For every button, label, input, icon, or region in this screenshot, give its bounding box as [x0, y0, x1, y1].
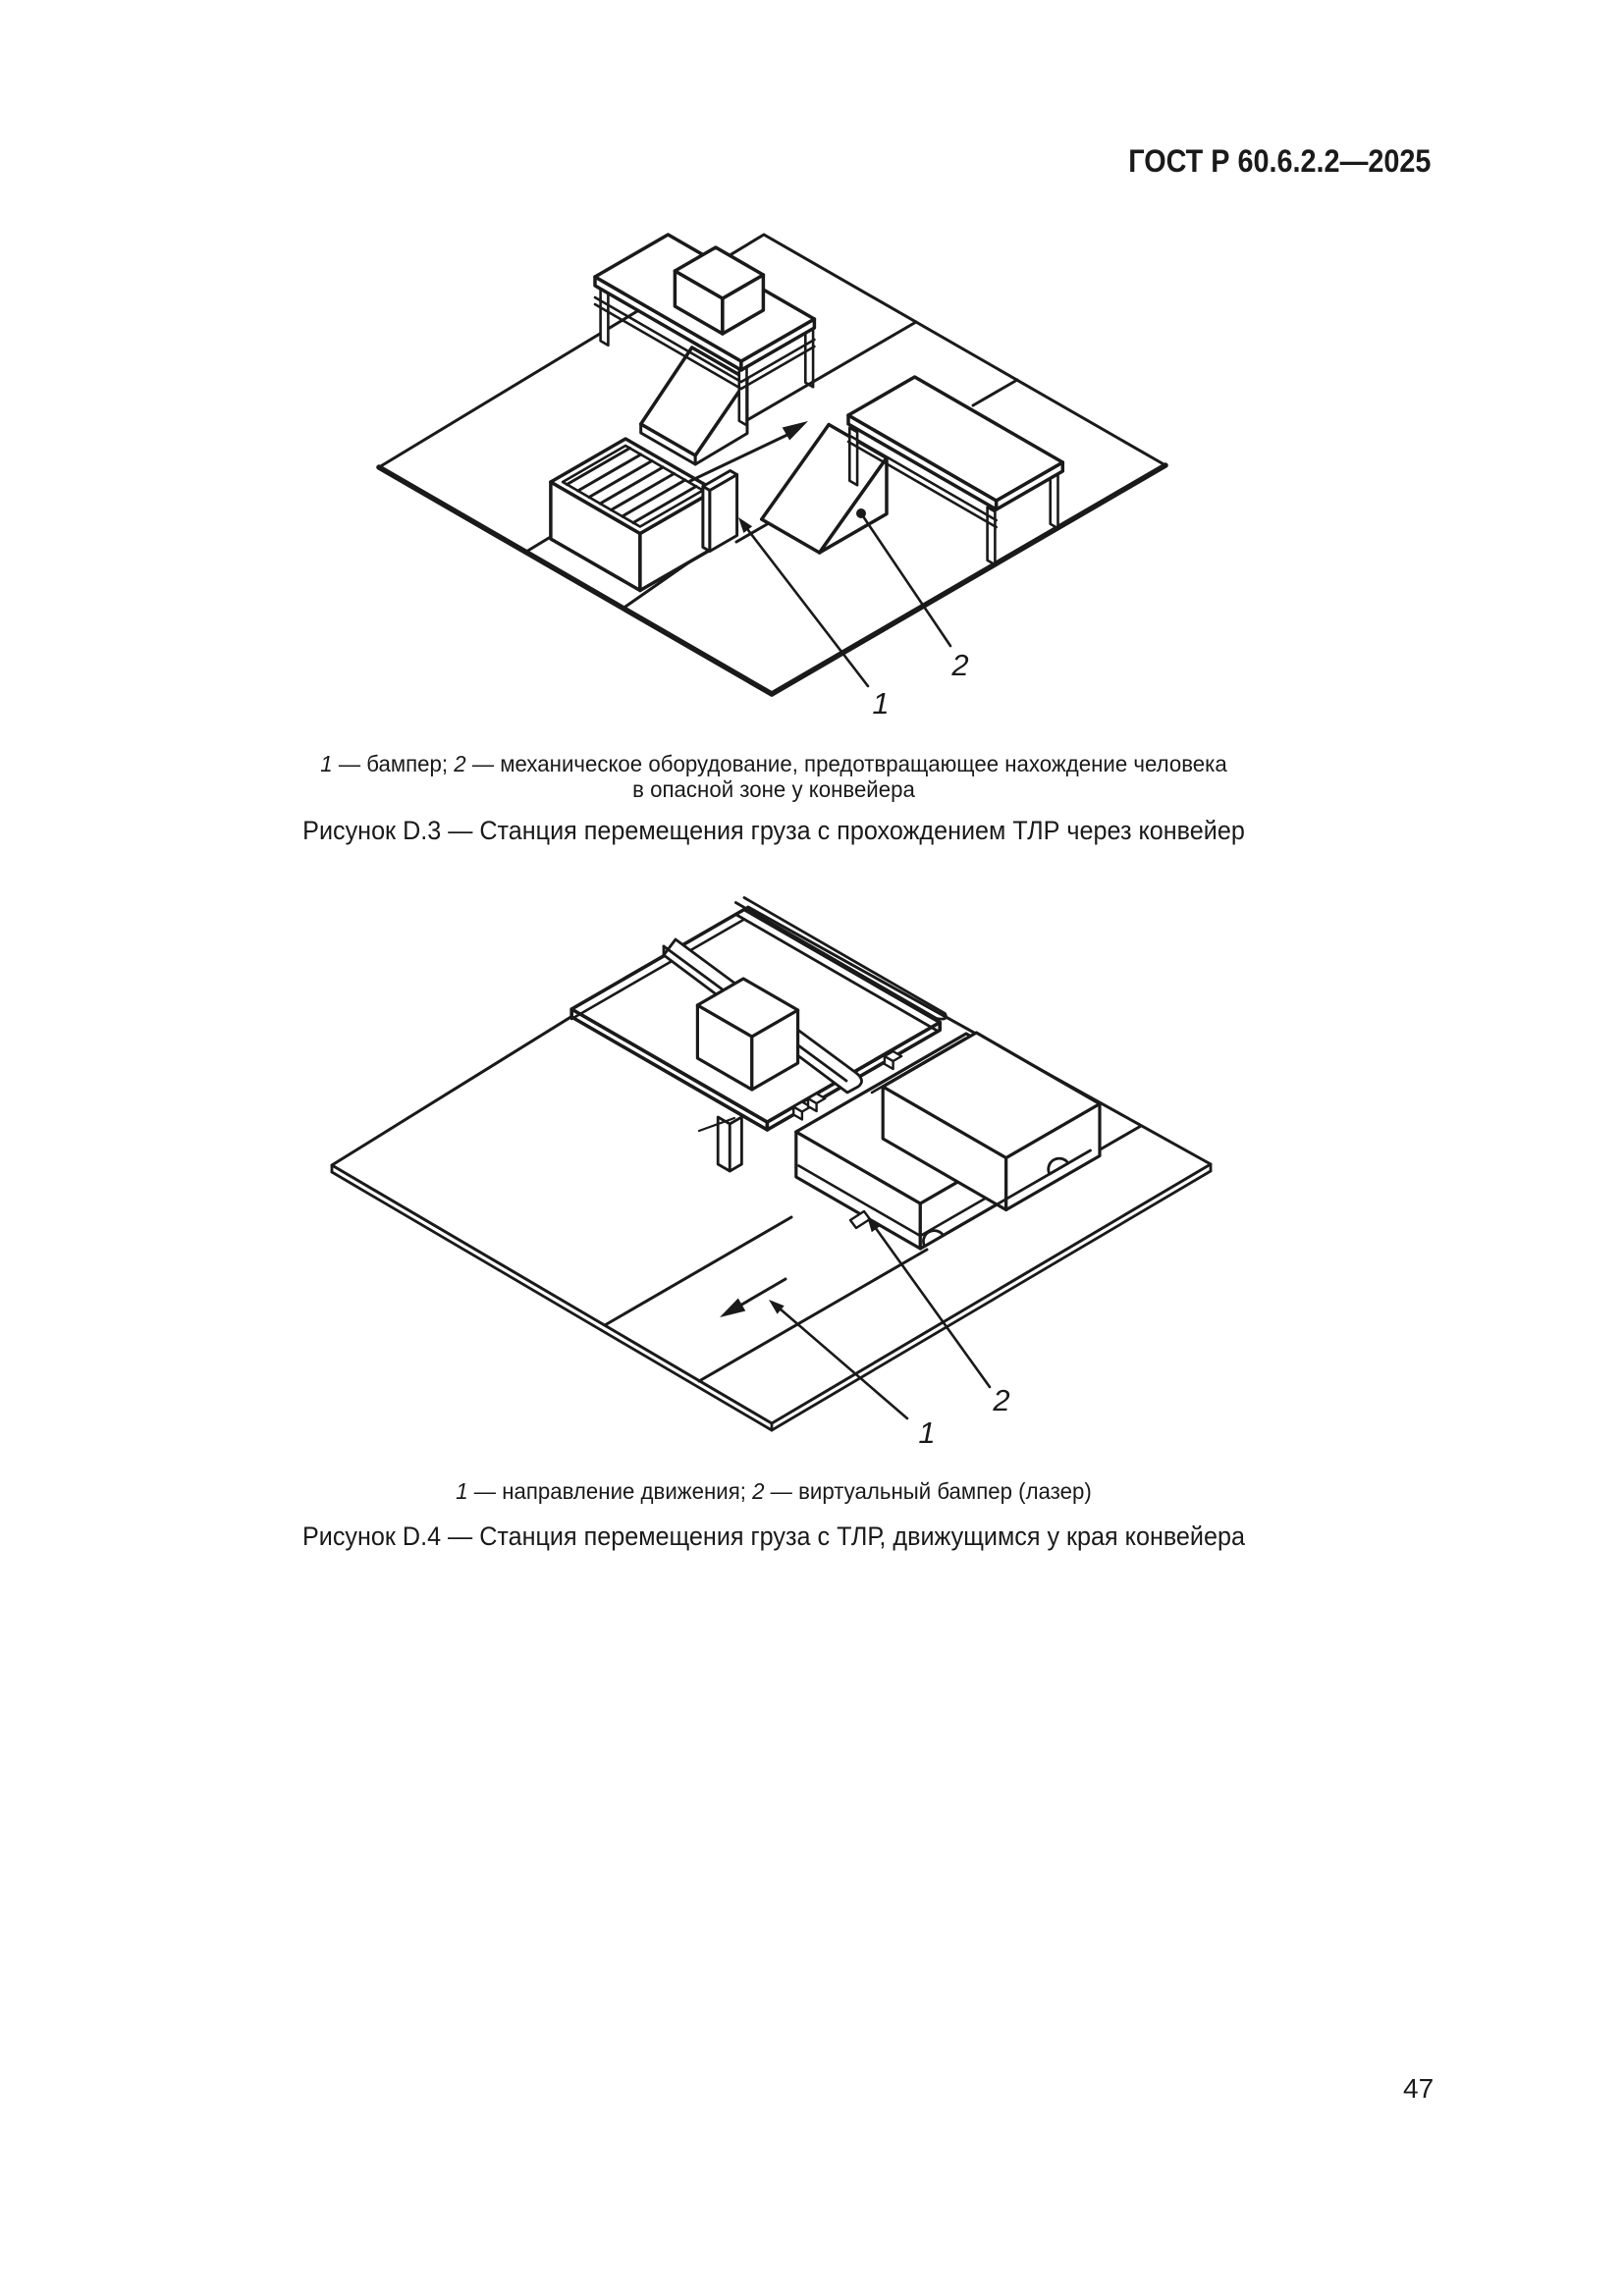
svg-text:2: 2	[992, 1383, 1009, 1417]
svg-text:1: 1	[872, 686, 889, 721]
svg-text:2: 2	[950, 648, 968, 682]
svg-text:1: 1	[918, 1415, 935, 1450]
